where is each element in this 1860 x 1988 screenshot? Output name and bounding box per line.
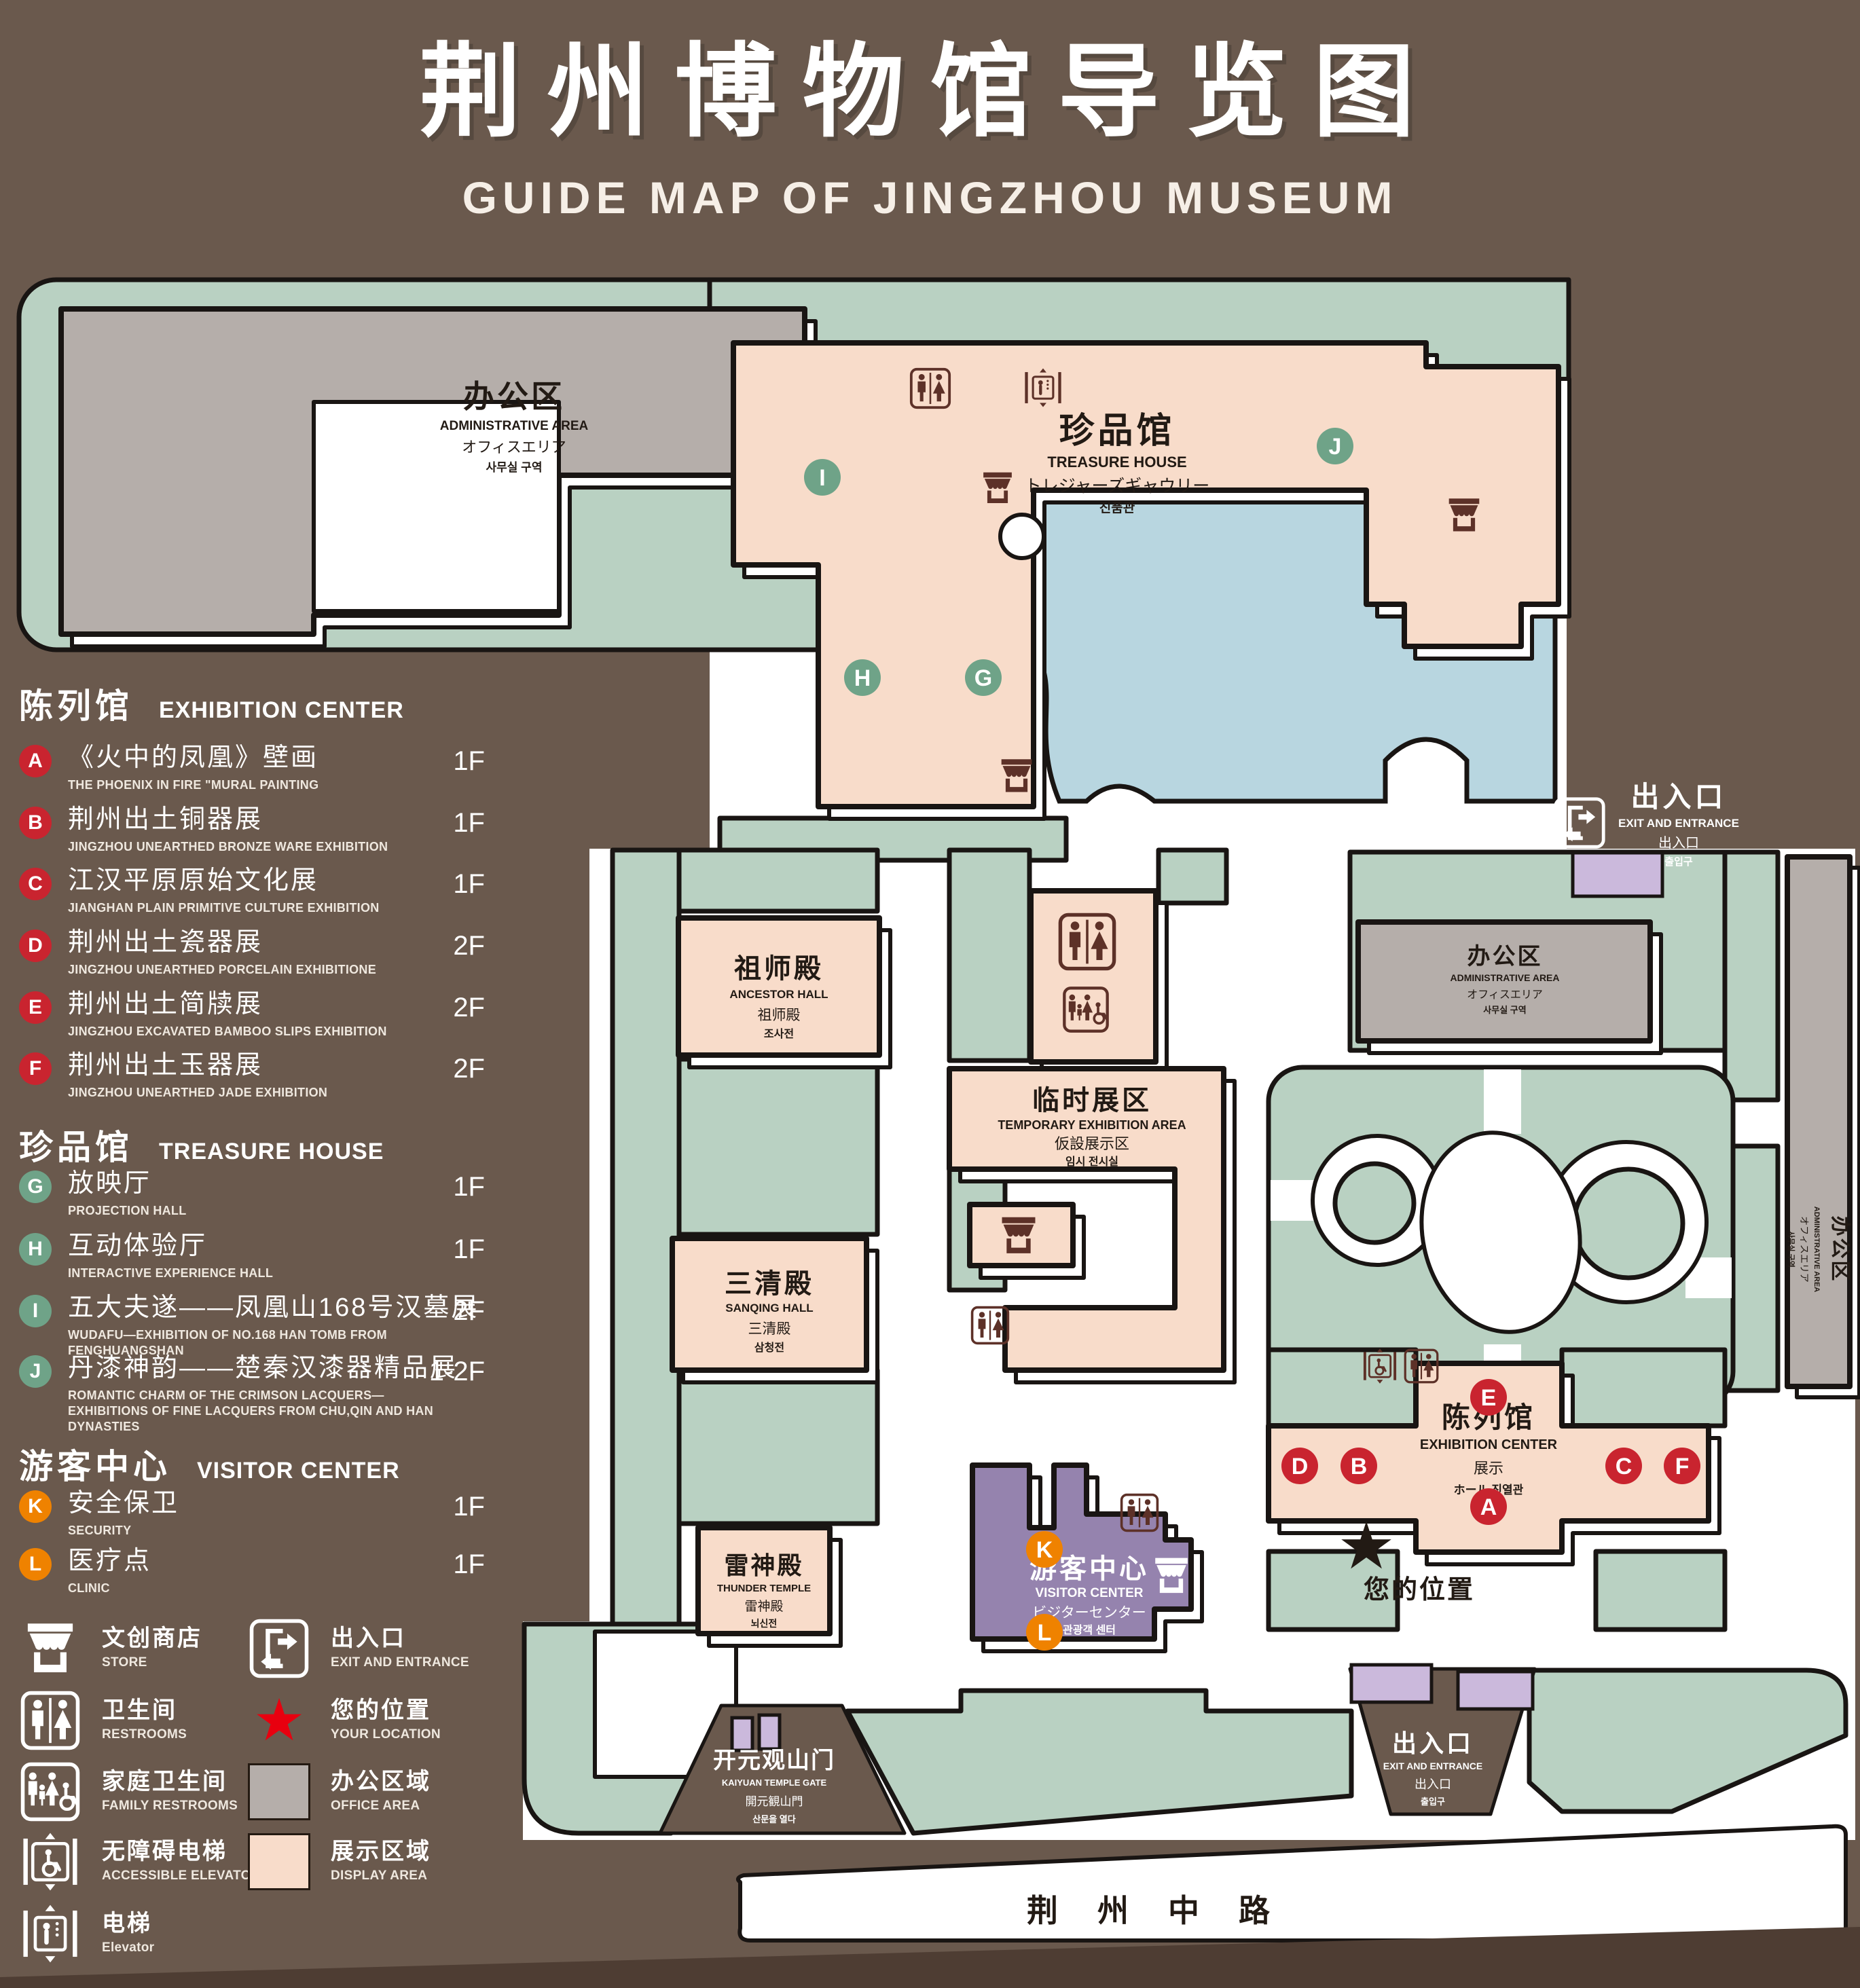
svg-text:オフィスエリア: オフィスエリア [462,439,566,456]
green-area [1596,1551,1725,1630]
svg-text:ADMINISTRATIVE AREA: ADMINISTRATIVE AREA [440,419,589,433]
svg-text:珍品馆: 珍品馆 [1059,411,1175,451]
svg-text:トレジャーズギャウリー: トレジャーズギャウリー [1025,477,1210,496]
green-area [1725,852,1778,1100]
legend-item-k: K 安全保卫SECURITY 1F [19,1489,488,1539]
svg-text:雷神殿: 雷神殿 [724,1551,803,1579]
svg-text:L: L [1038,1620,1052,1646]
floor-label: 1F [453,1172,485,1202]
building-admin-area-side [1787,857,1859,1397]
entrance-pad [759,1715,780,1749]
legend-symbol-accessible-elevator: 无障碍电梯ACCESSIBLE ELEVATOR [19,1830,261,1893]
marker-badge-i: I [19,1295,52,1327]
svg-text:출입구: 출입구 [1421,1797,1445,1807]
svg-text:出入口: 出入口 [1392,1729,1474,1757]
legend-symbol-family-restrooms: 家庭卫生间FAMILY RESTROOMS [19,1761,238,1823]
legend-symbol-office-area: 办公区域OFFICE AREA [248,1761,431,1823]
marker-badge-e: E [19,991,52,1024]
svg-text:J: J [1329,434,1342,460]
svg-text:出入口: 出入口 [1415,1778,1451,1791]
legend-item-i: I 五大夫遂——凤凰山168号汉墓展WUDAFU—EXHIBITION OF N… [19,1293,488,1359]
svg-text:사무실 구역: 사무실 구역 [486,461,543,474]
svg-text:EXHIBITION CENTER: EXHIBITION CENTER [1420,1437,1558,1452]
marker-badge-d: D [19,929,52,962]
legend-section-exhibition-center: 陈列馆 EXHIBITION CENTER [19,679,404,728]
svg-text:TREASURE HOUSE: TREASURE HOUSE [1047,454,1186,471]
page-title: 荆州博物馆导览图 GUIDE MAP OF JINGZHOU MUSEUM [0,10,1860,223]
marker-badge-g: G [19,1171,52,1203]
legend-section-visitor-center: 游客中心 VISITOR CENTER [19,1439,400,1488]
svg-text:出入口: 出入口 [1658,835,1699,851]
legend-item-f: F 荆州出土玉器展JINGZHOU UNEARTHED JADE EXHIBIT… [19,1051,488,1101]
marker-badge-l: L [19,1548,52,1581]
floor-label: 1F [453,1549,485,1580]
floor-label: 1F [453,746,485,777]
svg-text:办公区: 办公区 [1829,1216,1851,1283]
legend-item-a: A 《火中的凤凰》壁画THE PHOENIX IN FIRE "MURAL PA… [19,743,488,793]
legend-item-h: H 互动体验厅INTERACTIVE EXPERIENCE HALL 1F [19,1232,488,1281]
svg-text:ADMINISTRATIVE AREA: ADMINISTRATIVE AREA [1451,972,1560,983]
floor-label: 1-2F [429,1357,485,1387]
your-location-star-icon: ★ [1337,1510,1396,1583]
svg-text:I: I [819,465,825,491]
exit-icon [248,1617,310,1680]
svg-text:K: K [1036,1537,1053,1563]
entrance-pad [1351,1665,1432,1702]
map-marker-h: H [844,659,881,696]
legend-symbol-your-location: ★ 您的位置YOUR LOCATION [248,1689,441,1752]
entrance-pad [1458,1672,1533,1709]
svg-text:办公区: 办公区 [463,379,565,414]
green-area [1562,1350,1725,1426]
svg-text:三清殿: 三清殿 [725,1269,814,1299]
svg-text:オフィスエリア: オフィスエリア [1799,1216,1810,1283]
svg-text:관광객 센터: 관광객 센터 [1063,1623,1116,1636]
svg-text:オフィスエリア: オフィスエリア [1467,989,1543,1001]
svg-text:出入口: 出入口 [1630,781,1726,813]
svg-text:ADMINISTRATIVE AREA: ADMINISTRATIVE AREA [1812,1207,1821,1293]
svg-text:开元观山门: 开元观山门 [713,1748,835,1773]
svg-text:祖师殿: 祖师殿 [734,954,824,984]
your-location-label: 您的位置 [1364,1576,1475,1604]
location-star-icon: ★ [248,1689,310,1752]
map-legend: 陈列馆 EXHIBITION CENTER A 《火中的凤凰》壁画THE PHO… [19,679,488,1969]
display-area-swatch [248,1830,310,1893]
legend-item-d: D 荆州出土瓷器展JINGZHOU UNEARTHED PORCELAIN EX… [19,928,488,978]
svg-text:KAIYUAN TEMPLE GATE: KAIYUAN TEMPLE GATE [722,1778,827,1788]
svg-text:산문을 열다: 산문을 열다 [752,1814,795,1824]
map-marker-b: B [1341,1448,1377,1484]
svg-text:展示: 展示 [1474,1460,1503,1477]
green-area [949,850,1029,1061]
building-restroom-block [1031,891,1167,1074]
entrance-pad [732,1718,752,1750]
svg-text:사무실 구역: 사무실 구역 [1483,1005,1526,1015]
floor-label: 2F [453,993,485,1023]
green-area [679,1370,877,1524]
lakeside-pavilion [1000,515,1044,558]
legend-item-b: B 荆州出土铜器展JINGZHOU UNEARTHED BRONZE WARE … [19,805,488,855]
svg-text:TEMPORARY EXHIBITION AREA: TEMPORARY EXHIBITION AREA [998,1118,1186,1132]
svg-text:祖师殿: 祖师殿 [758,1008,801,1023]
svg-text:출입구: 출입구 [1664,856,1693,868]
legend-symbol-exit: 出入口EXIT AND ENTRANCE [248,1617,469,1680]
family-restroom-icon [19,1761,81,1823]
legend-symbol-elevator: 电梯Elevator [19,1902,154,1965]
map-marker-a: A [1470,1488,1507,1525]
marker-badge-h: H [19,1233,52,1266]
map-marker-i: I [804,459,841,496]
map-marker-g: G [965,659,1002,696]
svg-text:뇌신전: 뇌신전 [751,1618,778,1629]
floor-label: 2F [453,1054,485,1084]
svg-text:H: H [854,665,871,691]
map-marker-d: D [1281,1448,1318,1484]
svg-text:C: C [1616,1454,1633,1479]
svg-text:A: A [1480,1494,1497,1520]
legend-symbol-restrooms: 卫生间RESTROOMS [19,1689,187,1752]
svg-text:開元観山門: 開元観山門 [746,1795,803,1808]
svg-text:사무실 구역: 사무실 구역 [1787,1231,1796,1268]
elevator-icon [19,1902,81,1965]
floor-label: 1F [453,808,485,839]
svg-text:雷神殿: 雷神殿 [744,1599,783,1614]
svg-text:EXIT AND ENTRANCE: EXIT AND ENTRANCE [1383,1761,1483,1771]
floor-label: 2F [453,931,485,961]
svg-text:B: B [1351,1454,1368,1479]
map-marker-l: L [1026,1614,1063,1651]
map-marker-j: J [1317,428,1353,464]
store-icon [19,1617,81,1680]
marker-badge-k: K [19,1490,52,1523]
marker-badge-c: C [19,868,52,900]
legend-item-g: G 放映厅PROJECTION HALL 1F [19,1169,488,1219]
legend-item-e: E 荆州出土简牍展JINGZHOU EXCAVATED BAMBOO SLIPS… [19,990,488,1039]
svg-text:临时展区: 临时展区 [1032,1086,1152,1116]
svg-text:SANQING HALL: SANQING HALL [725,1302,813,1314]
legend-section-treasure-house: 珍品馆 TREASURE HOUSE [19,1120,384,1169]
svg-text:E: E [1481,1385,1497,1411]
green-area [679,1059,877,1234]
restroom-icon [19,1689,81,1752]
svg-text:D: D [1292,1454,1309,1479]
svg-text:EXIT AND ENTRANCE: EXIT AND ENTRANCE [1618,817,1739,830]
svg-text:진품관: 진품관 [1099,500,1135,515]
map-marker-e: E [1470,1379,1507,1416]
marker-badge-f: F [19,1052,52,1085]
office-area-swatch [248,1761,310,1823]
floor-label: 1F [453,1234,485,1265]
legend-item-l: L 医疗点CLINIC 1F [19,1547,488,1596]
map-marker-k: K [1026,1531,1063,1568]
svg-text:仮設展示区: 仮設展示区 [1055,1135,1129,1152]
svg-text:VISITOR CENTER: VISITOR CENTER [1035,1586,1143,1600]
marker-badge-b: B [19,807,52,839]
green-area [613,850,679,1668]
svg-text:ANCESTOR HALL: ANCESTOR HALL [729,988,828,1001]
svg-text:F: F [1675,1454,1690,1479]
marker-badge-j: J [19,1355,52,1388]
building-admin-area-right [1358,922,1661,1053]
svg-text:三清殿: 三清殿 [748,1321,791,1337]
entrance-pad [1573,853,1662,896]
svg-text:삼청전: 삼청전 [754,1341,784,1354]
green-area [1159,850,1226,903]
road-name: 荆州中路 [1027,1893,1309,1928]
svg-text:办公区: 办公区 [1467,944,1543,970]
svg-text:THUNDER TEMPLE: THUNDER TEMPLE [717,1583,811,1594]
legend-item-j: J 丹漆神韵——楚秦汉漆器精品展ROMANTIC CHARM OF THE CR… [19,1354,488,1435]
title-chinese: 荆州博物馆导览图 [0,10,1860,157]
svg-text:임시 전시실: 임시 전시실 [1065,1156,1118,1168]
legend-item-c: C 江汉平原原始文化展JIANGHAN PLAIN PRIMITIVE CULT… [19,866,488,916]
marker-badge-a: A [19,745,52,777]
accessible-elevator-icon [19,1830,81,1893]
legend-symbol-store: 文创商店STORE [19,1617,202,1680]
legend-symbol-display-area: 展示区域DISPLAY AREA [248,1830,431,1893]
map-marker-f: F [1664,1448,1700,1484]
floor-label: 1F [453,869,485,900]
svg-text:조사전: 조사전 [764,1028,794,1040]
floor-label: 2F [453,1296,485,1327]
floor-label: 1F [453,1492,485,1522]
map-marker-c: C [1605,1448,1642,1484]
title-english: GUIDE MAP OF JINGZHOU MUSEUM [0,172,1860,223]
svg-text:G: G [974,665,992,691]
green-area [679,850,877,911]
